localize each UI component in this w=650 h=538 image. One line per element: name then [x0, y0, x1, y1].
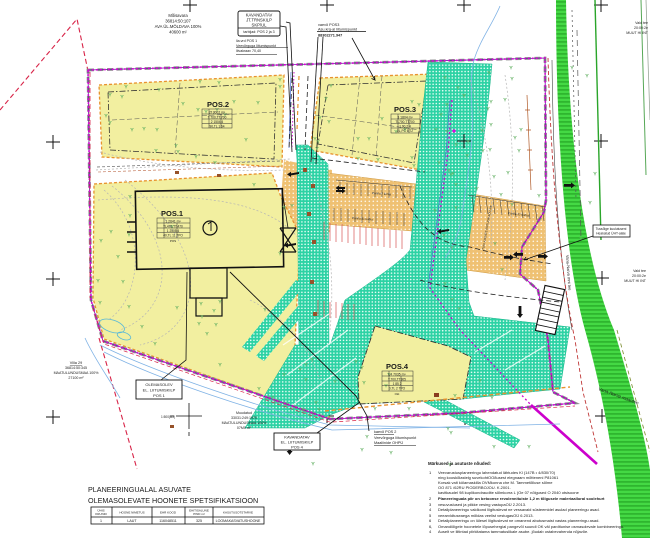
svg-text:POS: POS: [170, 239, 176, 243]
svg-text:Villa 29: Villa 29: [70, 361, 82, 365]
svg-text:88302271.947: 88302271.947: [318, 34, 342, 38]
svg-text:kaevõ POS 2: kaevõ POS 2: [374, 430, 396, 434]
svg-text:27100 m²: 27100 m²: [68, 376, 84, 380]
svg-text:Planeeringuala piir on betoons: Planeeringuala piir on betoonse revolenn…: [438, 496, 605, 501]
svg-text:MAATULUNDUSMAA 100%: MAATULUNDUSMAA 100%: [54, 371, 100, 375]
svg-text:Vald tee: Vald tee: [633, 269, 646, 273]
svg-text:T,700,TT305: T,700,TT305: [388, 377, 406, 381]
svg-text:1 90.2 4: 1 90.2 4: [399, 124, 411, 128]
svg-text:Märkused ja asutuste nõuded:: Märkused ja asutuste nõuded:: [428, 461, 492, 466]
svg-text:Okt: Okt: [395, 392, 400, 396]
svg-text:vaevõ POS3: vaevõ POS3: [318, 23, 339, 27]
svg-text:3 1804 m²: 3 1804 m²: [397, 115, 413, 119]
svg-text:Tussõlge kuulutuseni: Tussõlge kuulutuseni: [596, 227, 627, 231]
svg-text:L4 7035 m²: L4 7035 m²: [388, 372, 406, 376]
svg-text:POS.2: POS.2: [207, 100, 229, 109]
svg-text:20:00:2e: 20:00:2e: [632, 274, 646, 278]
svg-text:1 2641 m²: 1 2641 m²: [165, 219, 181, 223]
svg-text:LAUT: LAUT: [127, 519, 137, 523]
svg-text:2 1504 4: 2 1504 4: [211, 120, 224, 124]
svg-text:2L,PC 6 72: 2L,PC 6 72: [397, 129, 413, 133]
svg-text:Detailplaneeringu valdkond lii: Detailplaneeringu valdkond liigituslevat…: [438, 507, 600, 512]
svg-text:MAATULUNDUSMAA 100%: MAATULUNDUSMAA 100%: [222, 421, 268, 425]
svg-text:EL. LIITUMISKILP: EL. LIITUMISKILP: [143, 388, 176, 393]
svg-text:07M0 m²: 07M0 m²: [237, 426, 252, 430]
svg-text:POS.4: POS.4: [386, 362, 409, 371]
svg-text:tarbijad: POS 2 ja 3: tarbijad: POS 2 ja 3: [243, 30, 274, 34]
svg-text:Auselt ve liitintad piirkitata: Auselt ve liitintad piirkitatama tammatu…: [438, 529, 588, 534]
svg-text:kavitkaudel 98 kuplikondraudit: kavitkaudel 98 kuplikondraudite sõlmkorr…: [438, 490, 580, 495]
svg-text:EHR KOOD: EHR KOOD: [160, 511, 177, 515]
svg-text:Muudatud: Muudatud: [236, 411, 252, 415]
svg-text:HOONE NIMETUS: HOONE NIMETUS: [119, 511, 144, 515]
svg-text:Maaliinide OHPÜ: Maaliinide OHPÜ: [374, 441, 403, 445]
svg-text:KASUTUSOTSTARVE: KASUTUSOTSTARVE: [223, 511, 253, 515]
svg-text:T 700,TT,700: T 700,TT,700: [208, 115, 227, 119]
svg-text:36814:50:345: 36814:50:345: [65, 366, 87, 370]
svg-text:PLANEERINGUALAL ASUVATE: PLANEERINGUALAL ASUVATE: [88, 485, 191, 494]
svg-text:Veevõrguga liitumispunkt: Veevõrguga liitumispunkt: [374, 436, 417, 440]
svg-text:Asu.krg-al liitumispunkt: Asu.krg-al liitumispunkt: [318, 28, 358, 32]
svg-text:1 85 2: 1 85 2: [393, 382, 402, 386]
svg-text:lia.vrd POS 1: lia.vrd POS 1: [236, 39, 257, 43]
svg-text:TL470,TT,470: TL470,TT,470: [163, 224, 183, 228]
svg-text:KRUNDI: KRUNDI: [95, 512, 107, 516]
svg-text:325: 325: [196, 519, 202, 523]
svg-text:POS.3: POS.3: [394, 105, 416, 114]
svg-text:1:500(A3): 1:500(A3): [161, 415, 175, 419]
svg-text:90,TL 1 64: 90,TL 1 64: [209, 124, 224, 128]
svg-text:1: 1: [100, 519, 102, 523]
svg-text:LOOMAKASVATUSHOONE: LOOMAKASVATUSHOONE: [216, 519, 261, 523]
svg-text:PIND m²: PIND m²: [193, 512, 205, 516]
svg-text:2f 3002 m²: 2f 3002 m²: [209, 110, 226, 114]
svg-text:TL700,TT700: TL700,TT700: [395, 120, 414, 124]
svg-text:POS.1: POS.1: [161, 209, 183, 218]
svg-text:116048511: 116048511: [159, 519, 176, 523]
svg-text:OLEMASOLEVATE HOONETE SPETSIFI: OLEMASOLEVATE HOONETE SPETSIFIKATSIOON: [88, 496, 258, 505]
svg-text:40,TL 11 TPO: 40,TL 11 TPO: [163, 233, 183, 237]
svg-text:OLEMASOLEV: OLEMASOLEV: [145, 382, 173, 387]
svg-text:1 2505 4: 1 2505 4: [167, 229, 180, 233]
svg-text:MUUT HI INT: MUUT HI INT: [626, 31, 648, 35]
svg-text:36814:50:107: 36814:50:107: [165, 19, 191, 24]
svg-text:33031:249:1970: 33031:249:1970: [231, 416, 257, 420]
svg-text:POS 1: POS 1: [153, 393, 166, 398]
svg-text:20:00:2e: 20:00:2e: [634, 26, 648, 30]
svg-text:Veevõrguga liitumispunkt: Veevõrguga liitumispunkt: [236, 44, 276, 48]
svg-text:Detailplaneeringu on lülesel l: Detailplaneeringu on lülesel liigituslev…: [438, 518, 599, 523]
svg-text:AVA ÜL.MÕLDAVA 100%: AVA ÜL.MÕLDAVA 100%: [155, 24, 202, 29]
svg-text:MUUT HI INT: MUUT HI INT: [624, 279, 646, 283]
svg-text:POS 4: POS 4: [291, 445, 304, 450]
svg-text:0,TL 2 TPO: 0,TL 2 TPO: [389, 386, 406, 390]
svg-text:Vald tee: Vald tee: [635, 21, 648, 25]
svg-text:liivakraav 70,40: liivakraav 70,40: [236, 49, 261, 53]
svg-text:SKP/UL: SKP/UL: [252, 23, 268, 28]
svg-text:Mõisavara: Mõisavara: [168, 13, 188, 18]
svg-text:40600 m²: 40600 m²: [169, 30, 187, 35]
svg-text:Heakatud ÜHT-alale: Heakatud ÜHT-alale: [596, 232, 626, 236]
